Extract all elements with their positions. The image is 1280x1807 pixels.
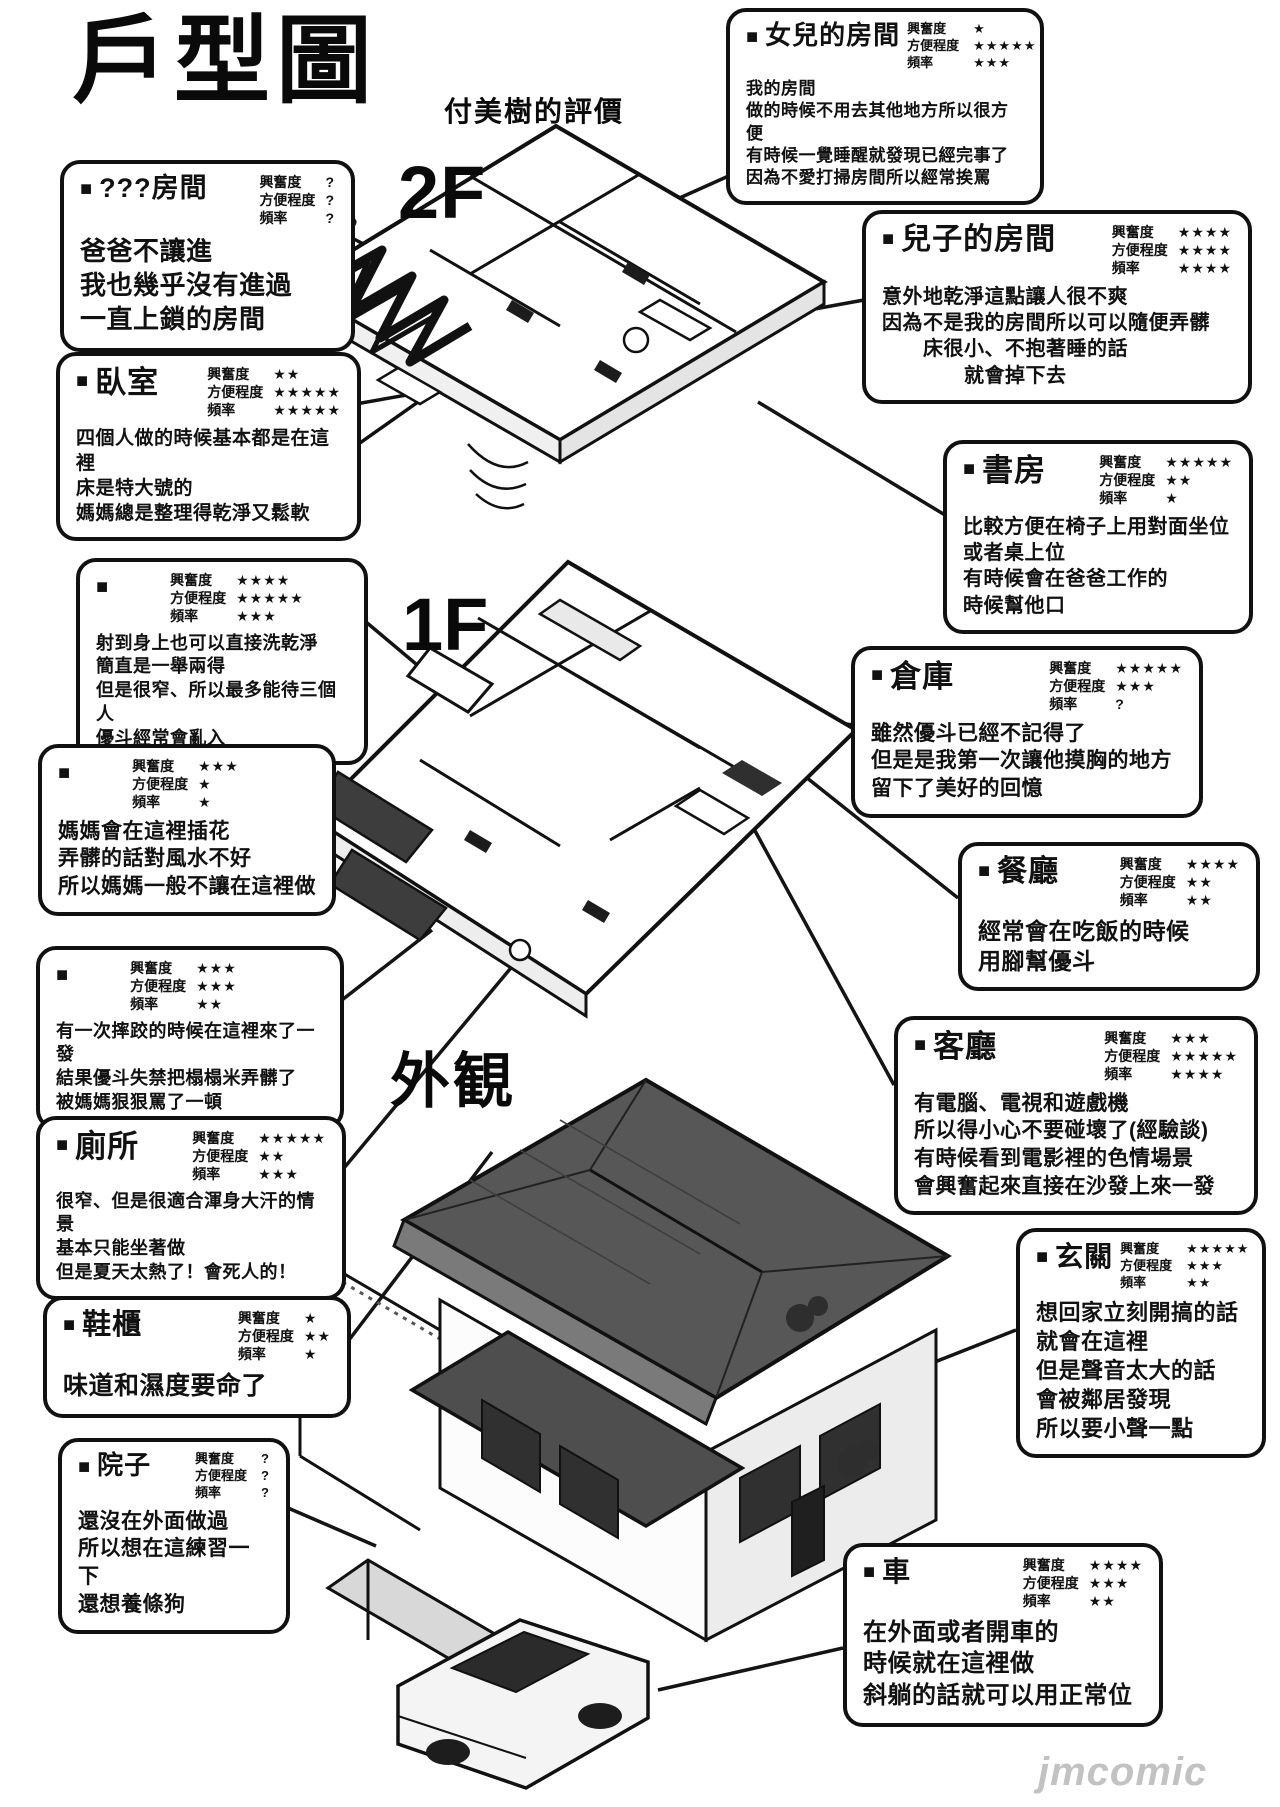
rating-value-frequency: ★: [1165, 489, 1179, 507]
bullet-square-icon: ■: [871, 662, 883, 688]
rating-label-frequency: 頻率: [1023, 1592, 1083, 1610]
rating-label-frequency: 頻率: [130, 995, 190, 1013]
rating-label-excitement: 興奮度: [1099, 453, 1159, 471]
rating-label-frequency: 頻率: [192, 1165, 252, 1183]
rating-label-convenience: 方便程度: [192, 1147, 252, 1165]
room-title: 廁所: [75, 1129, 139, 1165]
room-title: 車: [882, 1556, 911, 1588]
rating-value-excitement: ★★★★★: [1165, 453, 1233, 471]
bullet-square-icon: ■: [914, 1032, 926, 1058]
rating-label-frequency: 頻率: [238, 1345, 298, 1363]
room-card-unknown-room: ■ ???房間 興奮度? 方便程度? 頻率? 爸爸不讓進 我也幾乎沒有進過 一直…: [60, 160, 355, 352]
room-card-toilet: ■ 廁所 興奮度★★★★★ 方便程度★★ 頻率★★★ 很窄、但是很適合渾身大汗的…: [36, 1116, 346, 1300]
room-ratings: 興奮度★★★★★ 方便程度★★ 頻率★★★: [192, 1129, 326, 1184]
room-description: 有電腦、電視和遊戲機 所以得小心不要碰壞了(經驗談) 有時候看到電影裡的色情場景…: [914, 1090, 1238, 1201]
room-card-flower-room: ■ 興奮度★★★ 方便程度★ 頻率★ 媽媽會在這裡插花 弄髒的話對風水不好 所以…: [38, 744, 336, 916]
rating-label-convenience: 方便程度: [1023, 1574, 1083, 1592]
room-title: 女兒的房間: [765, 21, 900, 51]
room-title: 書房: [982, 453, 1046, 489]
watermark-text: jmcomic: [1038, 1750, 1207, 1795]
room-title: 餐廳: [997, 855, 1059, 890]
rating-label-convenience: 方便程度: [1120, 1258, 1180, 1275]
room-title: 倉庫: [890, 659, 954, 695]
room-ratings: 興奮度★★★★ 方便程度★★ 頻率★★: [1120, 855, 1240, 910]
floorplan-1f: [312, 562, 856, 1016]
rating-label-frequency: 頻率: [1120, 891, 1180, 909]
room-description: 我的房間 做的時候不用去其他地方所以很方便 有時候一覺睡醒就發現已經完事了 因為…: [746, 78, 1024, 190]
rating-value-convenience: ★★: [258, 1147, 285, 1165]
room-ratings: 興奮度★★ 方便程度★★★★★ 頻率★★★★★: [207, 365, 341, 420]
rating-value-convenience: ★★: [304, 1327, 331, 1345]
rating-label-frequency: 頻率: [1120, 1275, 1180, 1292]
rating-value-convenience: ★★★★: [1178, 241, 1232, 259]
rating-label-excitement: 興奮度: [1104, 1029, 1164, 1047]
rating-label-frequency: 頻率: [1112, 259, 1172, 277]
room-card-storage: ■ 倉庫 興奮度★★★★★ 方便程度★★★ 頻率? 雖然優斗已經不記得了 但是是…: [851, 646, 1203, 818]
room-card-entrance: ■ 玄關 興奮度★★★★★ 方便程度★★★ 頻率★★ 想回家立刻開搞的話 就會在…: [1016, 1228, 1266, 1458]
rating-value-frequency: ?: [1115, 695, 1125, 713]
rating-label-frequency: 頻率: [195, 1485, 255, 1502]
rating-label-frequency: 頻率: [1049, 695, 1109, 713]
rating-label-excitement: 興奮度: [195, 1451, 255, 1468]
bullet-square-icon: ■: [96, 574, 108, 600]
rating-value-convenience: ★★★: [1186, 1258, 1224, 1275]
rating-value-frequency: ★: [304, 1345, 318, 1363]
room-description: 四個人做的時候基本都是在這裡 床是特大號的 媽媽總是整理得乾淨又鬆軟: [76, 426, 341, 526]
rating-value-convenience: ★★: [1165, 471, 1192, 489]
room-title: ???房間: [99, 173, 207, 204]
rating-value-frequency: ★★★: [236, 607, 277, 625]
bullet-square-icon: ■: [56, 1132, 68, 1158]
rating-value-convenience: ★★★: [196, 977, 237, 995]
bullet-square-icon: ■: [882, 226, 894, 252]
room-description: 意外地乾淨這點讓人很不爽 因為不是我的房間所以可以隨便弄髒 床很小、不抱著睡的話…: [882, 284, 1232, 390]
room-ratings: 興奮度★★★ 方便程度★★★ 頻率★★: [130, 959, 237, 1014]
rating-value-excitement: ★★★★: [236, 571, 290, 589]
room-ratings: 興奮度★★★★★ 方便程度★★ 頻率★: [1099, 453, 1233, 508]
room-description: 經常會在吃飯的時候 用腳幫優斗: [978, 916, 1240, 977]
bullet-square-icon: ■: [863, 1559, 875, 1585]
room-title: 鞋櫃: [82, 1309, 142, 1342]
rating-label-excitement: 興奮度: [1120, 1241, 1180, 1258]
room-ratings: 興奮度★★★★★ 方便程度★★★ 頻率?: [1049, 659, 1183, 714]
rating-label-excitement: 興奮度: [132, 757, 192, 775]
rating-value-frequency: ★★★: [973, 55, 1011, 72]
rating-label-convenience: 方便程度: [1104, 1047, 1164, 1065]
room-card-yard: ■ 院子 興奮度? 方便程度? 頻率? 還沒在外面做過 所以想在這練習一下 還想…: [58, 1438, 290, 1634]
rating-value-excitement: ★★★★★: [1186, 1241, 1249, 1258]
rating-label-excitement: 興奮度: [1023, 1556, 1083, 1574]
rating-label-excitement: 興奮度: [192, 1129, 252, 1147]
room-card-tatami-room: ■ 興奮度★★★ 方便程度★★★ 頻率★★ 有一次摔跤的時候在這裡來了一發 結果…: [36, 946, 344, 1130]
rating-label-excitement: 興奮度: [1112, 223, 1172, 241]
rating-value-frequency: ★★★: [258, 1165, 299, 1183]
rating-label-convenience: 方便程度: [907, 38, 967, 55]
rating-value-convenience: ★★: [1186, 873, 1213, 891]
rating-value-frequency: ?: [261, 1485, 270, 1502]
rating-label-convenience: 方便程度: [207, 383, 267, 401]
floor-label-1f: 1F: [402, 588, 488, 662]
rating-label-excitement: 興奮度: [1049, 659, 1109, 677]
rating-value-excitement: ★★★★: [1186, 855, 1240, 873]
rating-label-frequency: 頻率: [1104, 1065, 1164, 1083]
floor-label-exterior: 外観: [390, 1052, 516, 1112]
rating-label-frequency: 頻率: [207, 401, 267, 419]
room-ratings: 興奮度★★★★ 方便程度★★★★ 頻率★★★★: [1112, 223, 1232, 278]
bullet-square-icon: ■: [63, 1312, 75, 1338]
rating-value-excitement: ★★★★★: [258, 1129, 326, 1147]
bullet-square-icon: ■: [746, 24, 758, 50]
bullet-square-icon: ■: [978, 858, 990, 884]
rating-label-convenience: 方便程度: [238, 1327, 298, 1345]
rating-value-frequency: ★★: [196, 995, 223, 1013]
room-card-bedroom: ■ 臥室 興奮度★★ 方便程度★★★★★ 頻率★★★★★ 四個人做的時候基本都是…: [56, 352, 361, 541]
room-card-car: ■ 車 興奮度★★★★ 方便程度★★★ 頻率★★ 在外面或者開車的 時候就在這裡…: [843, 1543, 1163, 1727]
rating-value-frequency: ★★★★: [1178, 259, 1232, 277]
rating-label-excitement: 興奮度: [259, 173, 319, 191]
room-ratings: 興奮度★★★★★ 方便程度★★★ 頻率★★: [1120, 1241, 1249, 1292]
bullet-square-icon: ■: [56, 962, 68, 988]
rating-label-convenience: 方便程度: [1120, 873, 1180, 891]
rating-label-frequency: 頻率: [907, 55, 967, 72]
room-ratings: 興奮度★ 方便程度★★ 頻率★: [238, 1309, 331, 1364]
rating-value-frequency: ★★★★★: [273, 401, 341, 419]
rating-value-excitement: ★★★★★: [1115, 659, 1183, 677]
rating-value-convenience: ★★★: [1089, 1574, 1130, 1592]
room-card-study: ■ 書房 興奮度★★★★★ 方便程度★★ 頻率★ 比較方便在椅子上用對面坐位 或…: [943, 440, 1253, 634]
rating-label-convenience: 方便程度: [259, 191, 319, 209]
room-ratings: 興奮度★★★★ 方便程度★★★ 頻率★★: [1023, 1556, 1143, 1611]
exterior-view: [241, 1080, 948, 1788]
rating-value-excitement: ★★★★: [1089, 1556, 1143, 1574]
room-ratings: 興奮度★★★★ 方便程度★★★★★ 頻率★★★: [170, 571, 304, 626]
room-description: 很窄、但是很適合渾身大汗的情景 基本只能坐著做 但是夏天太熱了！會死人的！: [56, 1190, 326, 1285]
room-title: 兒子的房間: [901, 223, 1056, 258]
rating-label-excitement: 興奮度: [1120, 855, 1180, 873]
room-card-dining-room: ■ 餐廳 興奮度★★★★ 方便程度★★ 頻率★★ 經常會在吃飯的時候 用腳幫優斗: [958, 842, 1260, 991]
room-card-living-room: ■ 客廳 興奮度★★★ 方便程度★★★★★ 頻率★★★★ 有電腦、電視和遊戲機 …: [894, 1016, 1258, 1215]
room-description: 射到身上也可以直接洗乾淨 簡直是一舉兩得 但是很窄、所以最多能待三個人 優斗經常…: [96, 632, 348, 751]
room-title: 臥室: [95, 365, 159, 401]
rating-value-convenience: ?: [325, 191, 335, 209]
rating-value-convenience: ?: [261, 1468, 270, 1485]
rating-value-convenience: ★★★★★: [973, 38, 1036, 55]
rating-value-frequency: ★★: [1089, 1592, 1116, 1610]
room-description: 有一次摔跤的時候在這裡來了一發 結果優斗失禁把榻榻米弄髒了 被媽媽狠狠罵了一頓: [56, 1020, 324, 1115]
rating-label-convenience: 方便程度: [1099, 471, 1159, 489]
bullet-square-icon: ■: [58, 760, 70, 786]
room-card-shoe-cabinet: ■ 鞋櫃 興奮度★ 方便程度★★ 頻率★ 味道和濕度要命了: [43, 1296, 351, 1418]
room-ratings: 興奮度? 方便程度? 頻率?: [259, 173, 335, 228]
rating-label-convenience: 方便程度: [130, 977, 190, 995]
rating-value-frequency: ★: [198, 793, 212, 811]
rating-label-convenience: 方便程度: [170, 589, 230, 607]
floor-label-2f: 2F: [398, 156, 486, 230]
room-ratings: 興奮度★★★ 方便程度★ 頻率★: [132, 757, 239, 812]
front-door: [792, 1486, 824, 1576]
rating-label-excitement: 興奮度: [130, 959, 190, 977]
rating-label-excitement: 興奮度: [238, 1309, 298, 1327]
room-description: 媽媽會在這裡插花 弄髒的話對風水不好 所以媽媽一般不讓在這裡做: [58, 818, 316, 901]
rating-value-convenience: ★★★★★: [1170, 1047, 1238, 1065]
rating-value-frequency: ★★: [1186, 1275, 1211, 1292]
rating-label-convenience: 方便程度: [1049, 677, 1109, 695]
rating-value-excitement: ★: [973, 21, 986, 38]
rating-value-frequency: ★★: [1186, 891, 1213, 909]
room-description: 雖然優斗已經不記得了 但是是我第一次讓他摸胸的地方 留下了美好的回憶: [871, 720, 1183, 803]
rating-value-convenience: ★★★★★: [236, 589, 304, 607]
rating-label-excitement: 興奮度: [170, 571, 230, 589]
room-card-son-room: ■ 兒子的房間 興奮度★★★★ 方便程度★★★★ 頻率★★★★ 意外地乾淨這點讓…: [862, 210, 1252, 404]
room-description: 爸爸不讓進 我也幾乎沒有進過 一直上鎖的房間: [80, 234, 335, 337]
room-description: 在外面或者開車的 時候就在這裡做 斜躺的話就可以用正常位: [863, 1617, 1143, 1712]
rating-label-convenience: 方便程度: [1112, 241, 1172, 259]
room-description: 想回家立刻開搞的話 就會在這裡 但是聲音太大的話 會被鄰居發現 所以要小聲一點: [1036, 1298, 1246, 1443]
room-ratings: 興奮度★★★ 方便程度★★★★★ 頻率★★★★: [1104, 1029, 1238, 1084]
room-card-daughter-room: ■ 女兒的房間 興奮度★ 方便程度★★★★★ 頻率★★★ 我的房間 做的時候不用…: [726, 8, 1044, 205]
rating-value-frequency: ?: [325, 209, 335, 227]
rating-label-frequency: 頻率: [132, 793, 192, 811]
rating-label-frequency: 頻率: [170, 607, 230, 625]
room-ratings: 興奮度? 方便程度? 頻率?: [195, 1451, 270, 1502]
room-description: 味道和濕度要命了: [63, 1370, 331, 1403]
bullet-square-icon: ■: [1036, 1244, 1048, 1270]
room-description: 比較方便在椅子上用對面坐位 或者桌上位 有時候會在爸爸工作的 時候幫他口: [963, 514, 1233, 620]
rating-value-excitement: ★★★: [196, 959, 237, 977]
rating-label-convenience: 方便程度: [195, 1468, 255, 1485]
rating-label-frequency: 頻率: [259, 209, 319, 227]
rating-value-excitement: ★★★★: [1178, 223, 1232, 241]
bullet-square-icon: ■: [963, 456, 975, 482]
room-description: 還沒在外面做過 所以想在這練習一下 還想養條狗: [78, 1508, 270, 1619]
bullet-square-icon: ■: [80, 176, 92, 202]
rating-value-excitement: ?: [261, 1451, 270, 1468]
bullet-square-icon: ■: [76, 368, 88, 394]
rating-value-convenience: ★★★: [1115, 677, 1156, 695]
rating-value-frequency: ★★★★: [1170, 1065, 1224, 1083]
rating-label-frequency: 頻率: [1099, 489, 1159, 507]
room-title: 院子: [97, 1451, 151, 1481]
room-title: 客廳: [933, 1029, 997, 1065]
rating-value-excitement: ?: [325, 173, 335, 191]
rating-value-excitement: ★: [304, 1309, 318, 1327]
bullet-square-icon: ■: [78, 1454, 90, 1480]
rating-value-convenience: ★★★★★: [273, 383, 341, 401]
evaluator-note: 付美樹的評價: [444, 98, 624, 126]
rating-label-excitement: 興奮度: [207, 365, 267, 383]
room-title: 玄關: [1055, 1241, 1113, 1273]
rating-value-excitement: ★★: [273, 365, 300, 383]
room-card-bathroom: ■ 興奮度★★★★ 方便程度★★★★★ 頻率★★★ 射到身上也可以直接洗乾淨 簡…: [76, 558, 368, 765]
rating-value-convenience: ★: [198, 775, 212, 793]
rating-label-convenience: 方便程度: [132, 775, 192, 793]
rating-label-excitement: 興奮度: [907, 21, 967, 38]
page-title: 戶型圖: [72, 14, 378, 110]
rating-value-excitement: ★★★: [1170, 1029, 1211, 1047]
rating-value-excitement: ★★★: [198, 757, 239, 775]
room-ratings: 興奮度★ 方便程度★★★★★ 頻率★★★: [907, 21, 1036, 72]
